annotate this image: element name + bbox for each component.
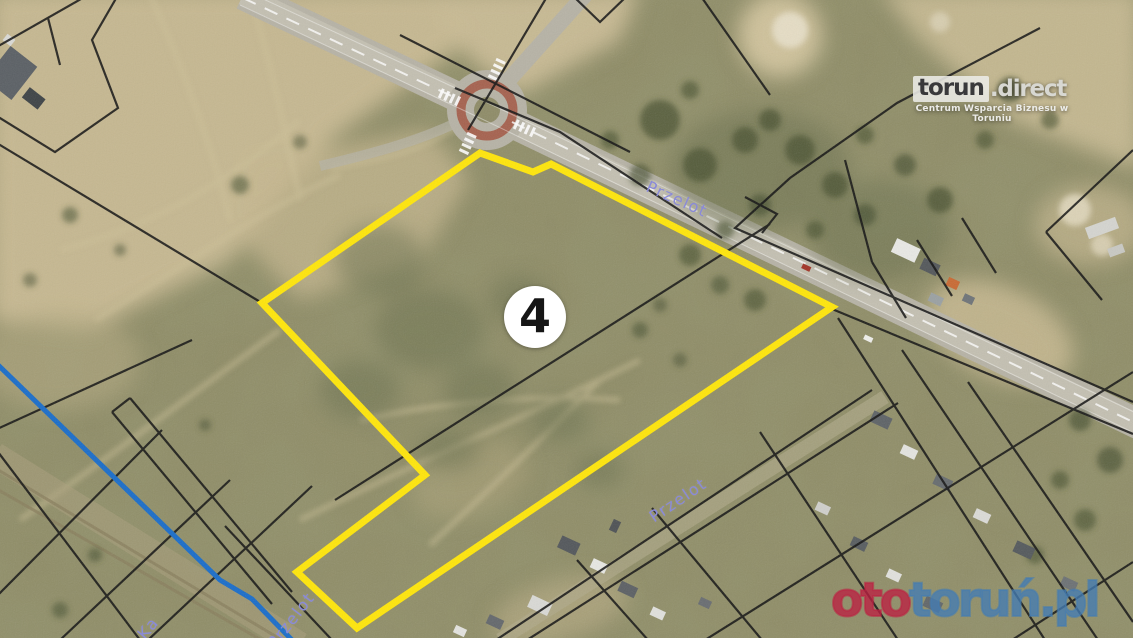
- torun-direct-logo: torun .direct Centrum Wsparcia Biznesu w…: [913, 76, 1083, 124]
- ototorun-watermark: ototoruń.pl: [831, 577, 1098, 624]
- logo-primary: torun: [913, 76, 989, 102]
- satellite-map-screenshot: Przelot Przelot Przelot Ka 4 torun .dire…: [0, 0, 1133, 638]
- parcel-marker: 4: [504, 286, 566, 348]
- logo-secondary: .direct: [990, 76, 1066, 102]
- watermark-prefix: oto: [831, 573, 909, 628]
- parcel-marker-label: 4: [519, 293, 551, 339]
- logo-tagline: Centrum Wsparcia Biznesu w Toruniu: [913, 104, 1071, 124]
- watermark-suffix: toruń.pl: [909, 573, 1097, 628]
